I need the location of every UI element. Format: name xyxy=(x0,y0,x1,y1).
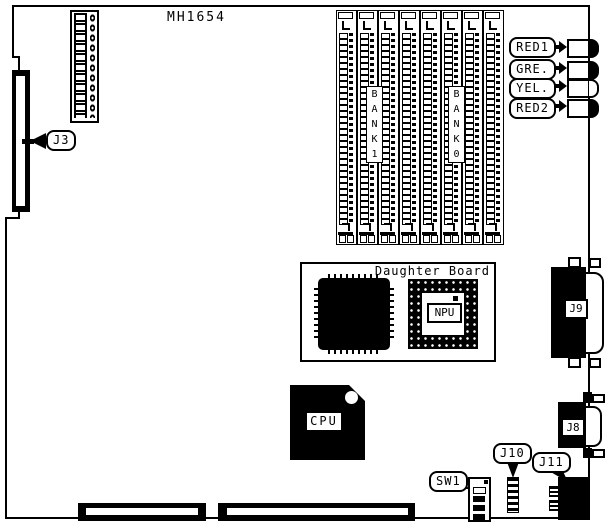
sw1-switch xyxy=(468,477,491,522)
led-gre-lens xyxy=(589,61,599,80)
j8-tab-top-right xyxy=(592,394,605,403)
sw1-position-4 xyxy=(473,514,485,520)
qfp-chip xyxy=(318,278,390,350)
led-gre-body xyxy=(567,61,590,80)
qfp-pins-bottom xyxy=(328,349,380,354)
sw1-indicator-dot xyxy=(484,480,488,484)
led-yel-lens xyxy=(589,79,599,98)
motherboard-diagram: MH1654 J3 B A N K 1 B A N K 0 RED1 GRE. … xyxy=(0,0,612,527)
j8-tab-bottom xyxy=(583,448,592,458)
npu-pin1-dot xyxy=(453,296,458,301)
sw1-position-1 xyxy=(473,487,486,494)
led-red2-arrow xyxy=(559,100,567,112)
led-red2-lens xyxy=(589,99,599,118)
cpu-pin1-dot xyxy=(345,391,358,404)
led-yel-body xyxy=(567,79,590,98)
qfp-pins-left xyxy=(314,288,319,340)
edge-connector-left xyxy=(78,503,206,521)
pin-header-square-column xyxy=(74,13,87,118)
simm-slot xyxy=(483,10,504,245)
cpu-label: CPU xyxy=(307,413,341,430)
sw1-position-3 xyxy=(473,505,485,511)
j11-pin-block-2 xyxy=(549,500,559,511)
j9-label: J9 xyxy=(564,299,588,319)
j3-connector-slot xyxy=(16,76,25,206)
j10-callout: J10 xyxy=(493,443,532,464)
qfp-pins-top xyxy=(328,274,380,279)
edge-connector-right-slot xyxy=(227,508,408,515)
j11-pin-block-1 xyxy=(549,486,559,497)
bank0-label: B A N K 0 xyxy=(448,86,465,163)
j11-connector xyxy=(558,477,590,520)
led-gre-arrow xyxy=(559,62,567,74)
simm-slot xyxy=(420,10,441,245)
led-red1-body xyxy=(567,39,590,58)
sw1-callout: SW1 xyxy=(429,471,468,492)
j11-callout: J11 xyxy=(532,452,571,473)
sw1-position-2 xyxy=(473,496,485,502)
led-gre-callout: GRE. xyxy=(509,59,556,80)
pin-header-top-left xyxy=(70,10,99,123)
led-red1-arrow xyxy=(559,41,567,53)
j10-callout-tail xyxy=(507,462,519,478)
simm-slot xyxy=(336,10,357,245)
bank1-label: B A N K 1 xyxy=(366,86,383,163)
npu-label: NPU xyxy=(427,303,462,323)
j9-tab-bottom-right xyxy=(589,358,601,368)
cpu-chip: CPU xyxy=(290,385,365,460)
j9-tab-top-right xyxy=(589,258,601,268)
j8-label: J8 xyxy=(561,418,585,437)
j3-connector xyxy=(12,70,30,212)
led-yel-callout: YEL. xyxy=(509,78,556,99)
edge-connector-left-slot xyxy=(86,508,198,515)
led-red2-body xyxy=(567,99,590,118)
simm-slot xyxy=(399,10,420,245)
j3-arrow-head xyxy=(30,133,46,149)
edge-connector-right xyxy=(218,503,415,521)
daughter-board-title: Daughter Board xyxy=(375,264,490,278)
led-red2-callout: RED2 xyxy=(509,98,556,119)
part-number-label: MH1654 xyxy=(167,10,226,25)
j8-tab-bottom-right xyxy=(592,449,605,458)
qfp-pins-right xyxy=(389,288,394,340)
led-yel-arrow xyxy=(559,80,567,92)
led-red1-callout: RED1 xyxy=(509,37,556,58)
j9-tab-bottom-left xyxy=(568,357,581,368)
j10-header xyxy=(507,477,519,513)
j3-callout: J3 xyxy=(46,130,76,151)
pin-header-pin-column xyxy=(89,13,96,118)
led-red1-lens xyxy=(589,39,599,58)
simm-slot xyxy=(462,10,483,245)
